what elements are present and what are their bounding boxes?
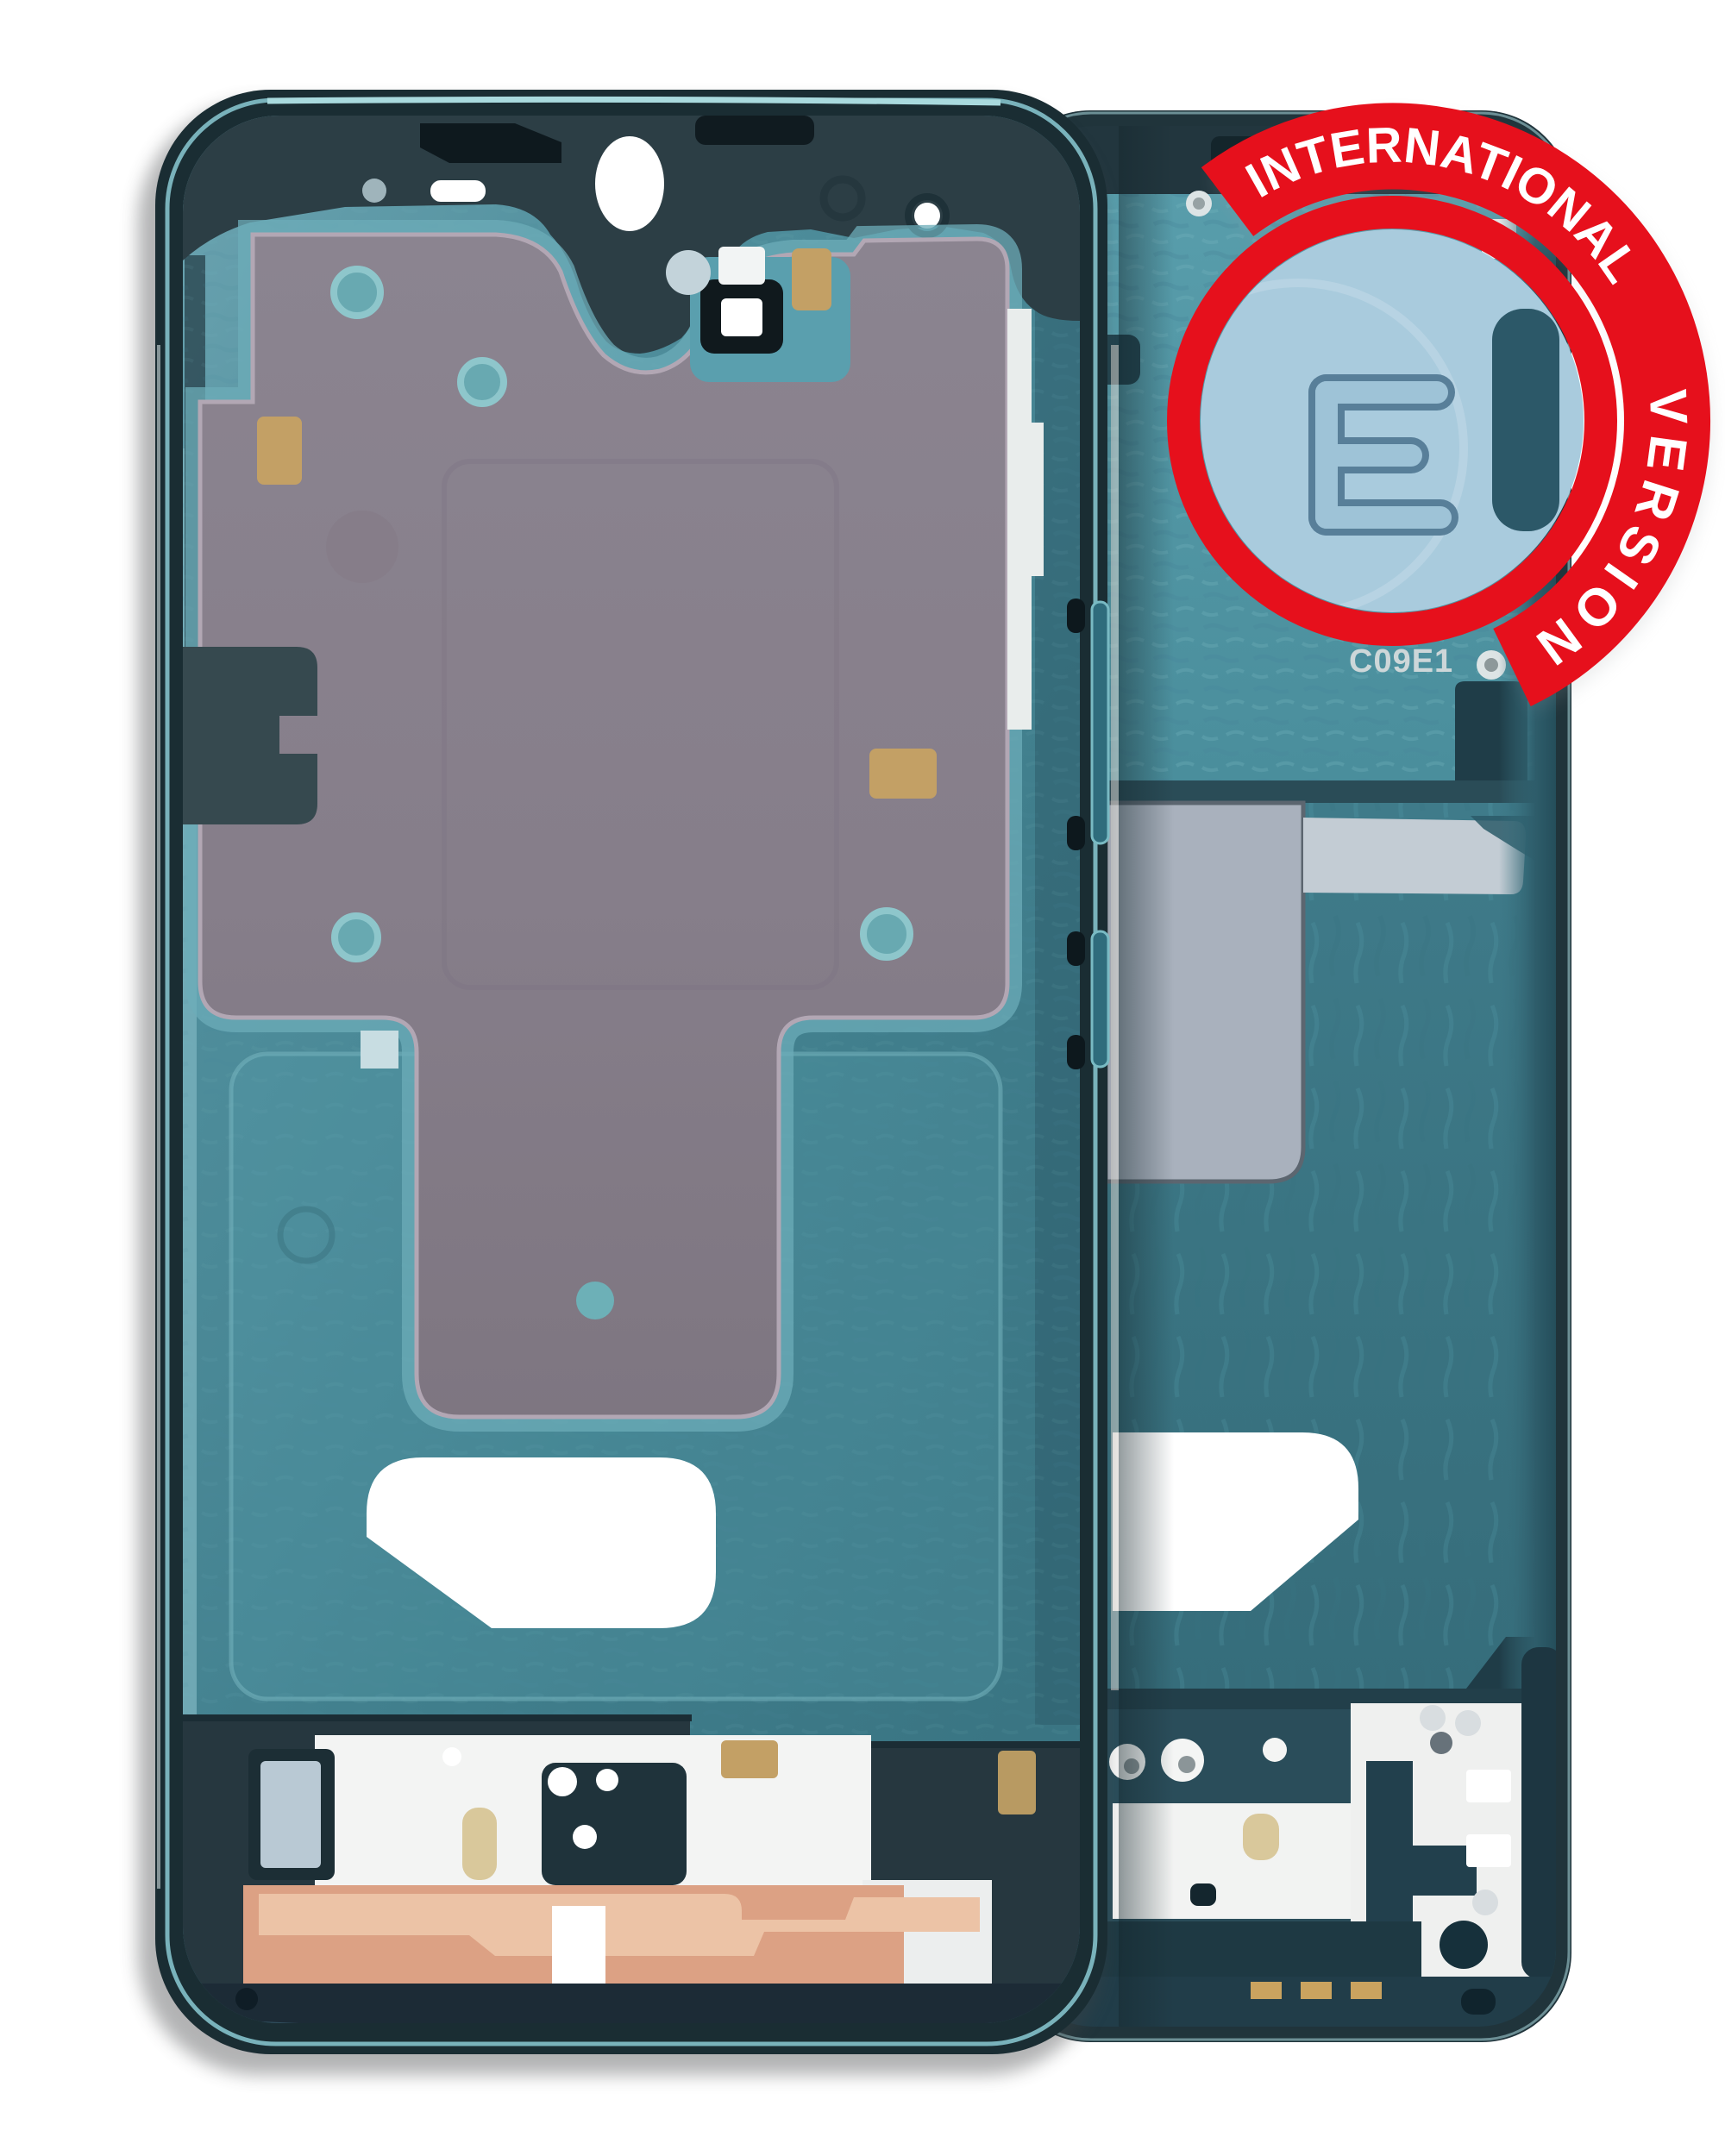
svg-text:C09E1: C09E1	[1349, 643, 1453, 680]
